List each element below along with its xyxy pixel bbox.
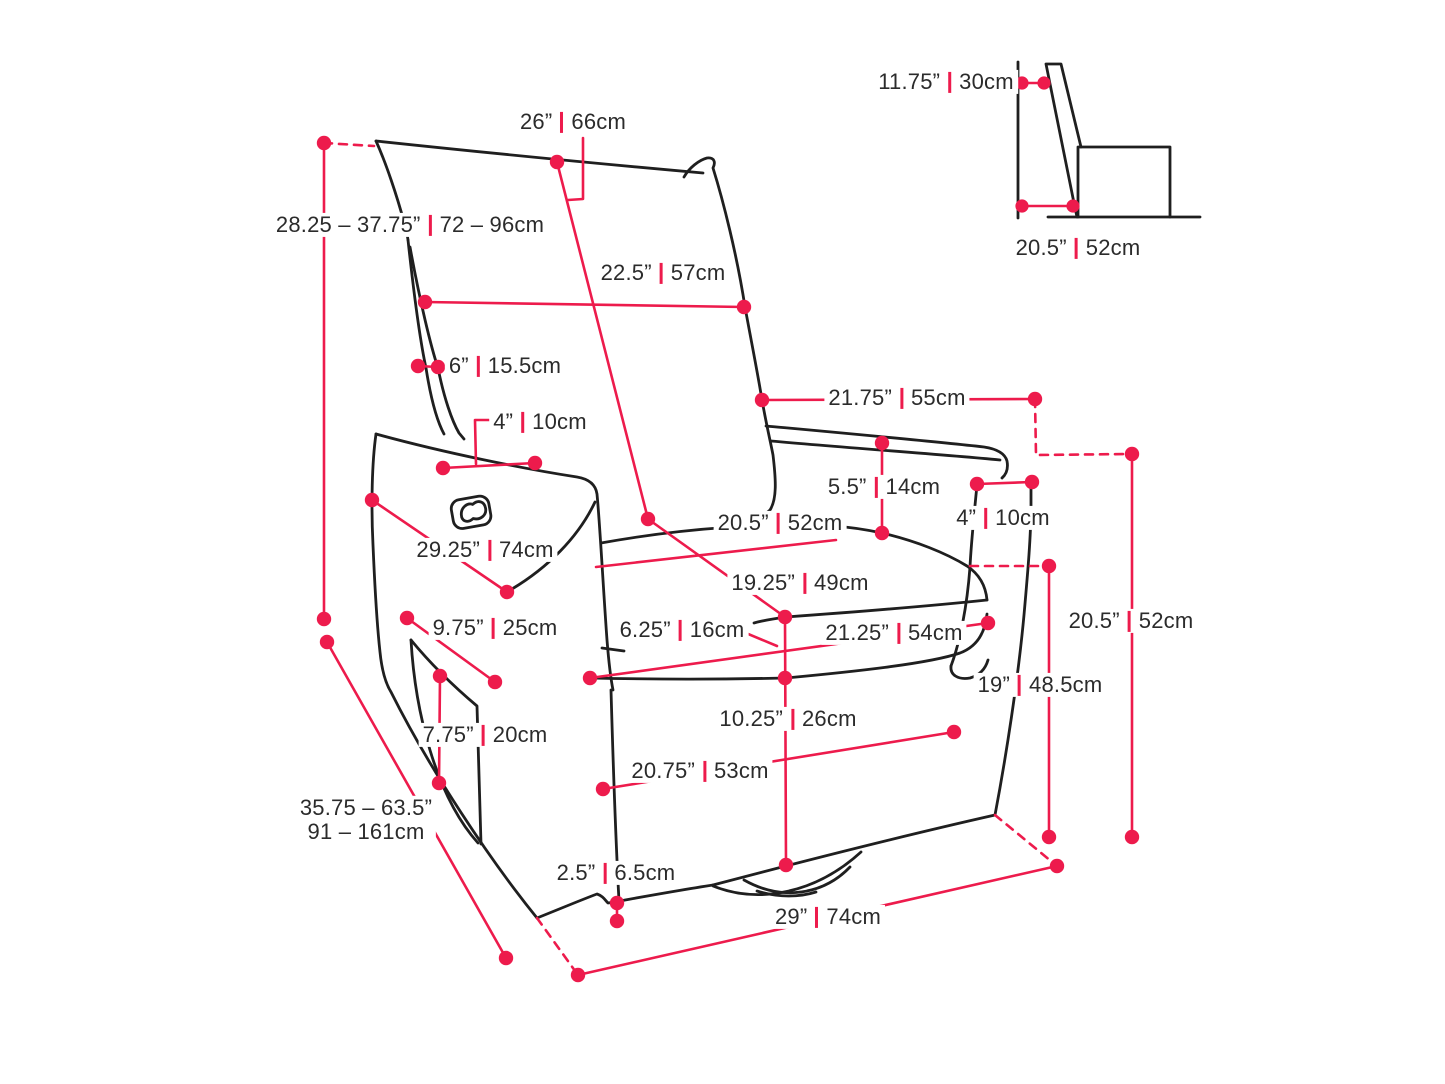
dim-label-armrest-length: 21.75”55cm <box>824 386 969 410</box>
unit-separator <box>679 620 682 641</box>
dim-inches: 26” <box>520 110 552 134</box>
unit-separator <box>488 540 491 561</box>
dim-cm: 74cm <box>499 538 554 562</box>
dim-label-overall-front-width: 29”74cm <box>771 905 885 929</box>
dim-label-seat-height-right: 20.5”52cm <box>1065 609 1198 633</box>
dim-cm: 16cm <box>690 618 745 642</box>
chair-outline <box>372 141 1031 918</box>
bracket-armrest-top-width <box>475 420 489 464</box>
dim-label-cushion-thickness: 6.25”16cm <box>616 618 749 642</box>
dim-label-side-seat-depth: 20.5”52cm <box>1012 236 1145 260</box>
base-right-edge <box>995 484 1031 815</box>
unit-separator <box>1128 611 1131 632</box>
dim-inches: 19.25” <box>731 571 795 595</box>
dim-cm: 14cm <box>886 475 941 499</box>
unit-separator <box>492 618 495 639</box>
dim-inches: 4” <box>493 410 513 434</box>
dim-cm: 26cm <box>802 707 857 731</box>
dim-label-back-side-thickness: 6”15.5cm <box>445 354 565 378</box>
backrest-right-edge <box>684 158 775 520</box>
dim-inches: 21.75” <box>828 386 892 410</box>
unit-separator <box>897 623 900 644</box>
dim-inches: 4” <box>956 506 976 530</box>
dim-inches: 29.25” <box>416 538 480 562</box>
right-arm-upper-band <box>766 426 1007 478</box>
dim-label-pocket-width: 9.75”25cm <box>429 616 562 640</box>
unit-separator <box>815 907 818 928</box>
dim-cm: 20cm <box>493 723 548 747</box>
unit-separator <box>1075 238 1078 259</box>
dim-inches: 19” <box>978 673 1010 697</box>
dim-label-wall-clearance: 11.75”30cm <box>874 70 1018 94</box>
dim-label-arm-front-width: 4”10cm <box>952 506 1054 530</box>
dim-label-base-side-length: 20.75”53cm <box>627 759 772 783</box>
dim-inches: 20.5” <box>718 511 769 535</box>
dim-inches: 6” <box>449 354 469 378</box>
dim-cm: 52cm <box>1139 609 1194 633</box>
unit-separator <box>660 263 663 284</box>
dim-inches: 22.5” <box>601 261 652 285</box>
dim-inches: 35.75 – 63.5” <box>300 796 432 820</box>
dim-label-seat-depth: 19.25”49cm <box>727 571 872 595</box>
dim-inches: 20.75” <box>631 759 695 783</box>
dim-cm: 52cm <box>1086 236 1141 260</box>
dim-cm: 10cm <box>995 506 1050 530</box>
dim-label-backrest-mid-width: 22.5”57cm <box>597 261 730 285</box>
dim-cm: 91 – 161cm <box>300 820 432 844</box>
unit-separator <box>482 725 485 746</box>
dim-cm: 49cm <box>814 571 869 595</box>
dim-cm: 53cm <box>714 759 769 783</box>
dim-inches: 29” <box>775 905 807 929</box>
mini-seat-box <box>1078 147 1170 217</box>
dim-inches: 2.5” <box>557 861 596 885</box>
unit-separator <box>429 215 432 236</box>
dim-inches: 11.75” <box>878 70 940 94</box>
dim-inches: 20.5” <box>1016 236 1067 260</box>
dim-cm: 54cm <box>908 621 963 645</box>
dim-cm: 30cm <box>959 70 1014 94</box>
dim-cm: 72 – 96cm <box>440 213 545 237</box>
back-sliver-right <box>410 247 464 439</box>
unit-separator <box>560 112 563 133</box>
dim-cm: 48.5cm <box>1029 673 1102 697</box>
left-arm-left-edge <box>372 434 537 918</box>
dim-inches: 10.25” <box>719 707 783 731</box>
dim-label-arm-height-floor: 19”48.5cm <box>974 673 1107 697</box>
unit-separator <box>703 761 706 782</box>
unit-separator <box>948 72 951 93</box>
dim-label-pocket-height: 7.75”20cm <box>419 723 552 747</box>
dim-label-arm-front-diagonal: 29.25”74cm <box>412 538 557 562</box>
dim-inches: 20.5” <box>1069 609 1120 633</box>
dim-cm: 15.5cm <box>488 354 561 378</box>
unit-separator <box>477 356 480 377</box>
recliner-dimension-drawing <box>0 0 1445 1084</box>
dim-cm: 74cm <box>826 905 881 929</box>
dim-label-bottom-clearance: 2.5”6.5cm <box>553 861 680 885</box>
dim-cm: 52cm <box>788 511 843 535</box>
dim-inches: 7.75” <box>423 723 474 747</box>
dim-label-armrest-top-width: 4”10cm <box>489 410 591 434</box>
recliner-handle-icon <box>450 495 492 530</box>
dim-inches: 21.25” <box>825 621 889 645</box>
unit-separator <box>603 863 606 884</box>
base-bottom-edge-left <box>537 885 713 918</box>
dim-inches: 5.5” <box>828 475 867 499</box>
bracket-backrest-width <box>568 138 583 200</box>
unit-separator <box>900 388 903 409</box>
unit-separator <box>521 412 524 433</box>
dim-label-back-height-range: 28.25 – 37.75”72 – 96cm <box>272 213 548 237</box>
dim-label-extended-length-range: 35.75 – 63.5” 91 – 161cm <box>296 796 436 844</box>
dim-inches: 6.25” <box>620 618 671 642</box>
unit-separator <box>875 477 878 498</box>
unit-separator <box>1018 675 1021 696</box>
unit-separator <box>803 573 806 594</box>
base-bottom-edge-right <box>713 815 995 885</box>
dim-cm: 66cm <box>571 110 626 134</box>
dim-inches: 9.75” <box>433 616 484 640</box>
dim-cm: 57cm <box>671 261 726 285</box>
dim-inches: 28.25 – 37.75” <box>276 213 421 237</box>
dim-label-arm-above-seat: 5.5”14cm <box>824 475 944 499</box>
dim-label-seat-width: 20.5”52cm <box>714 511 847 535</box>
seat-cushion-front-dash <box>602 648 624 651</box>
dim-cm: 25cm <box>503 616 558 640</box>
dim-cm: 6.5cm <box>614 861 675 885</box>
dim-label-seat-front-width: 21.25”54cm <box>821 621 966 645</box>
unit-separator <box>984 508 987 529</box>
dim-label-backrest-width: 26”66cm <box>516 110 630 134</box>
mini-backrest <box>1046 64 1081 217</box>
dimension-diagram-canvas: 26”66cm 11.75”30cm 20.5”52cm 28.25 – 37.… <box>0 0 1445 1084</box>
unit-separator <box>777 513 780 534</box>
dim-cm: 55cm <box>911 386 966 410</box>
dim-cm: 10cm <box>532 410 587 434</box>
dim-label-base-front-height: 10.25”26cm <box>715 707 860 731</box>
backrest-top-edge <box>376 141 703 173</box>
unit-separator <box>791 709 794 730</box>
